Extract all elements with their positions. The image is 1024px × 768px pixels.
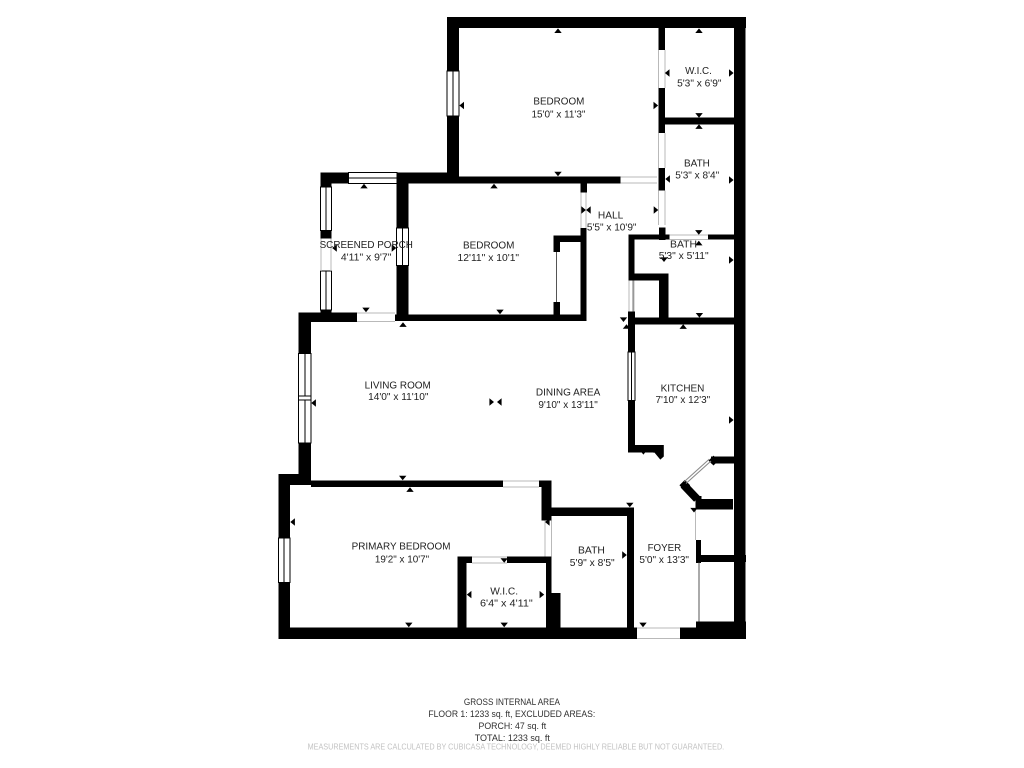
svg-text:5'3" x 5'11": 5'3" x 5'11"	[659, 251, 709, 262]
svg-text:KITCHEN: KITCHEN	[661, 384, 705, 395]
svg-text:LIVING ROOM: LIVING ROOM	[365, 380, 431, 391]
svg-text:15'0" x 11'3": 15'0" x 11'3"	[532, 109, 586, 120]
svg-text:DINING AREA: DINING AREA	[536, 388, 601, 399]
svg-text:MEASUREMENTS ARE CALCULATED BY: MEASUREMENTS ARE CALCULATED BY CUBICASA …	[308, 742, 725, 751]
svg-text:12'11" x 10'1": 12'11" x 10'1"	[458, 253, 520, 264]
svg-text:7'10" x 12'3": 7'10" x 12'3"	[656, 395, 711, 406]
svg-text:14'0" x 11'10": 14'0" x 11'10"	[368, 392, 429, 403]
svg-text:BEDROOM: BEDROOM	[533, 97, 584, 108]
svg-text:W.I.C.: W.I.C.	[685, 66, 712, 77]
svg-text:6'4" x 4'11": 6'4" x 4'11"	[480, 598, 533, 609]
svg-text:BATH: BATH	[684, 158, 710, 169]
svg-text:W.I.C.: W.I.C.	[490, 587, 518, 598]
svg-text:HALL: HALL	[598, 211, 624, 222]
svg-text:BEDROOM: BEDROOM	[463, 241, 514, 252]
svg-text:5'9" x 8'5": 5'9" x 8'5"	[570, 558, 615, 569]
svg-text:19'2" x 10'7": 19'2" x 10'7"	[375, 555, 430, 566]
svg-text:FLOOR 1: 1233 sq. ft, EXCLUDED: FLOOR 1: 1233 sq. ft, EXCLUDED AREAS:	[428, 709, 595, 719]
svg-text:BATH: BATH	[670, 240, 697, 251]
svg-text:5'5" x 10'9": 5'5" x 10'9"	[587, 222, 637, 233]
svg-text:4'11" x 9'7": 4'11" x 9'7"	[341, 252, 392, 263]
svg-text:5'3" x 6'9": 5'3" x 6'9"	[677, 78, 722, 89]
svg-text:SCREENED PORCH: SCREENED PORCH	[320, 240, 413, 251]
svg-text:5'3" x 8'4": 5'3" x 8'4"	[675, 170, 719, 181]
svg-text:PORCH: 47 sq. ft: PORCH: 47 sq. ft	[479, 721, 547, 731]
svg-text:PRIMARY BEDROOM: PRIMARY BEDROOM	[352, 542, 451, 553]
svg-text:5'0" x 13'3": 5'0" x 13'3"	[639, 555, 689, 566]
svg-text:GROSS INTERNAL AREA: GROSS INTERNAL AREA	[464, 697, 560, 707]
svg-text:BATH: BATH	[578, 546, 605, 557]
svg-text:FOYER: FOYER	[648, 543, 682, 554]
svg-text:9'10" x 13'11": 9'10" x 13'11"	[538, 400, 598, 411]
